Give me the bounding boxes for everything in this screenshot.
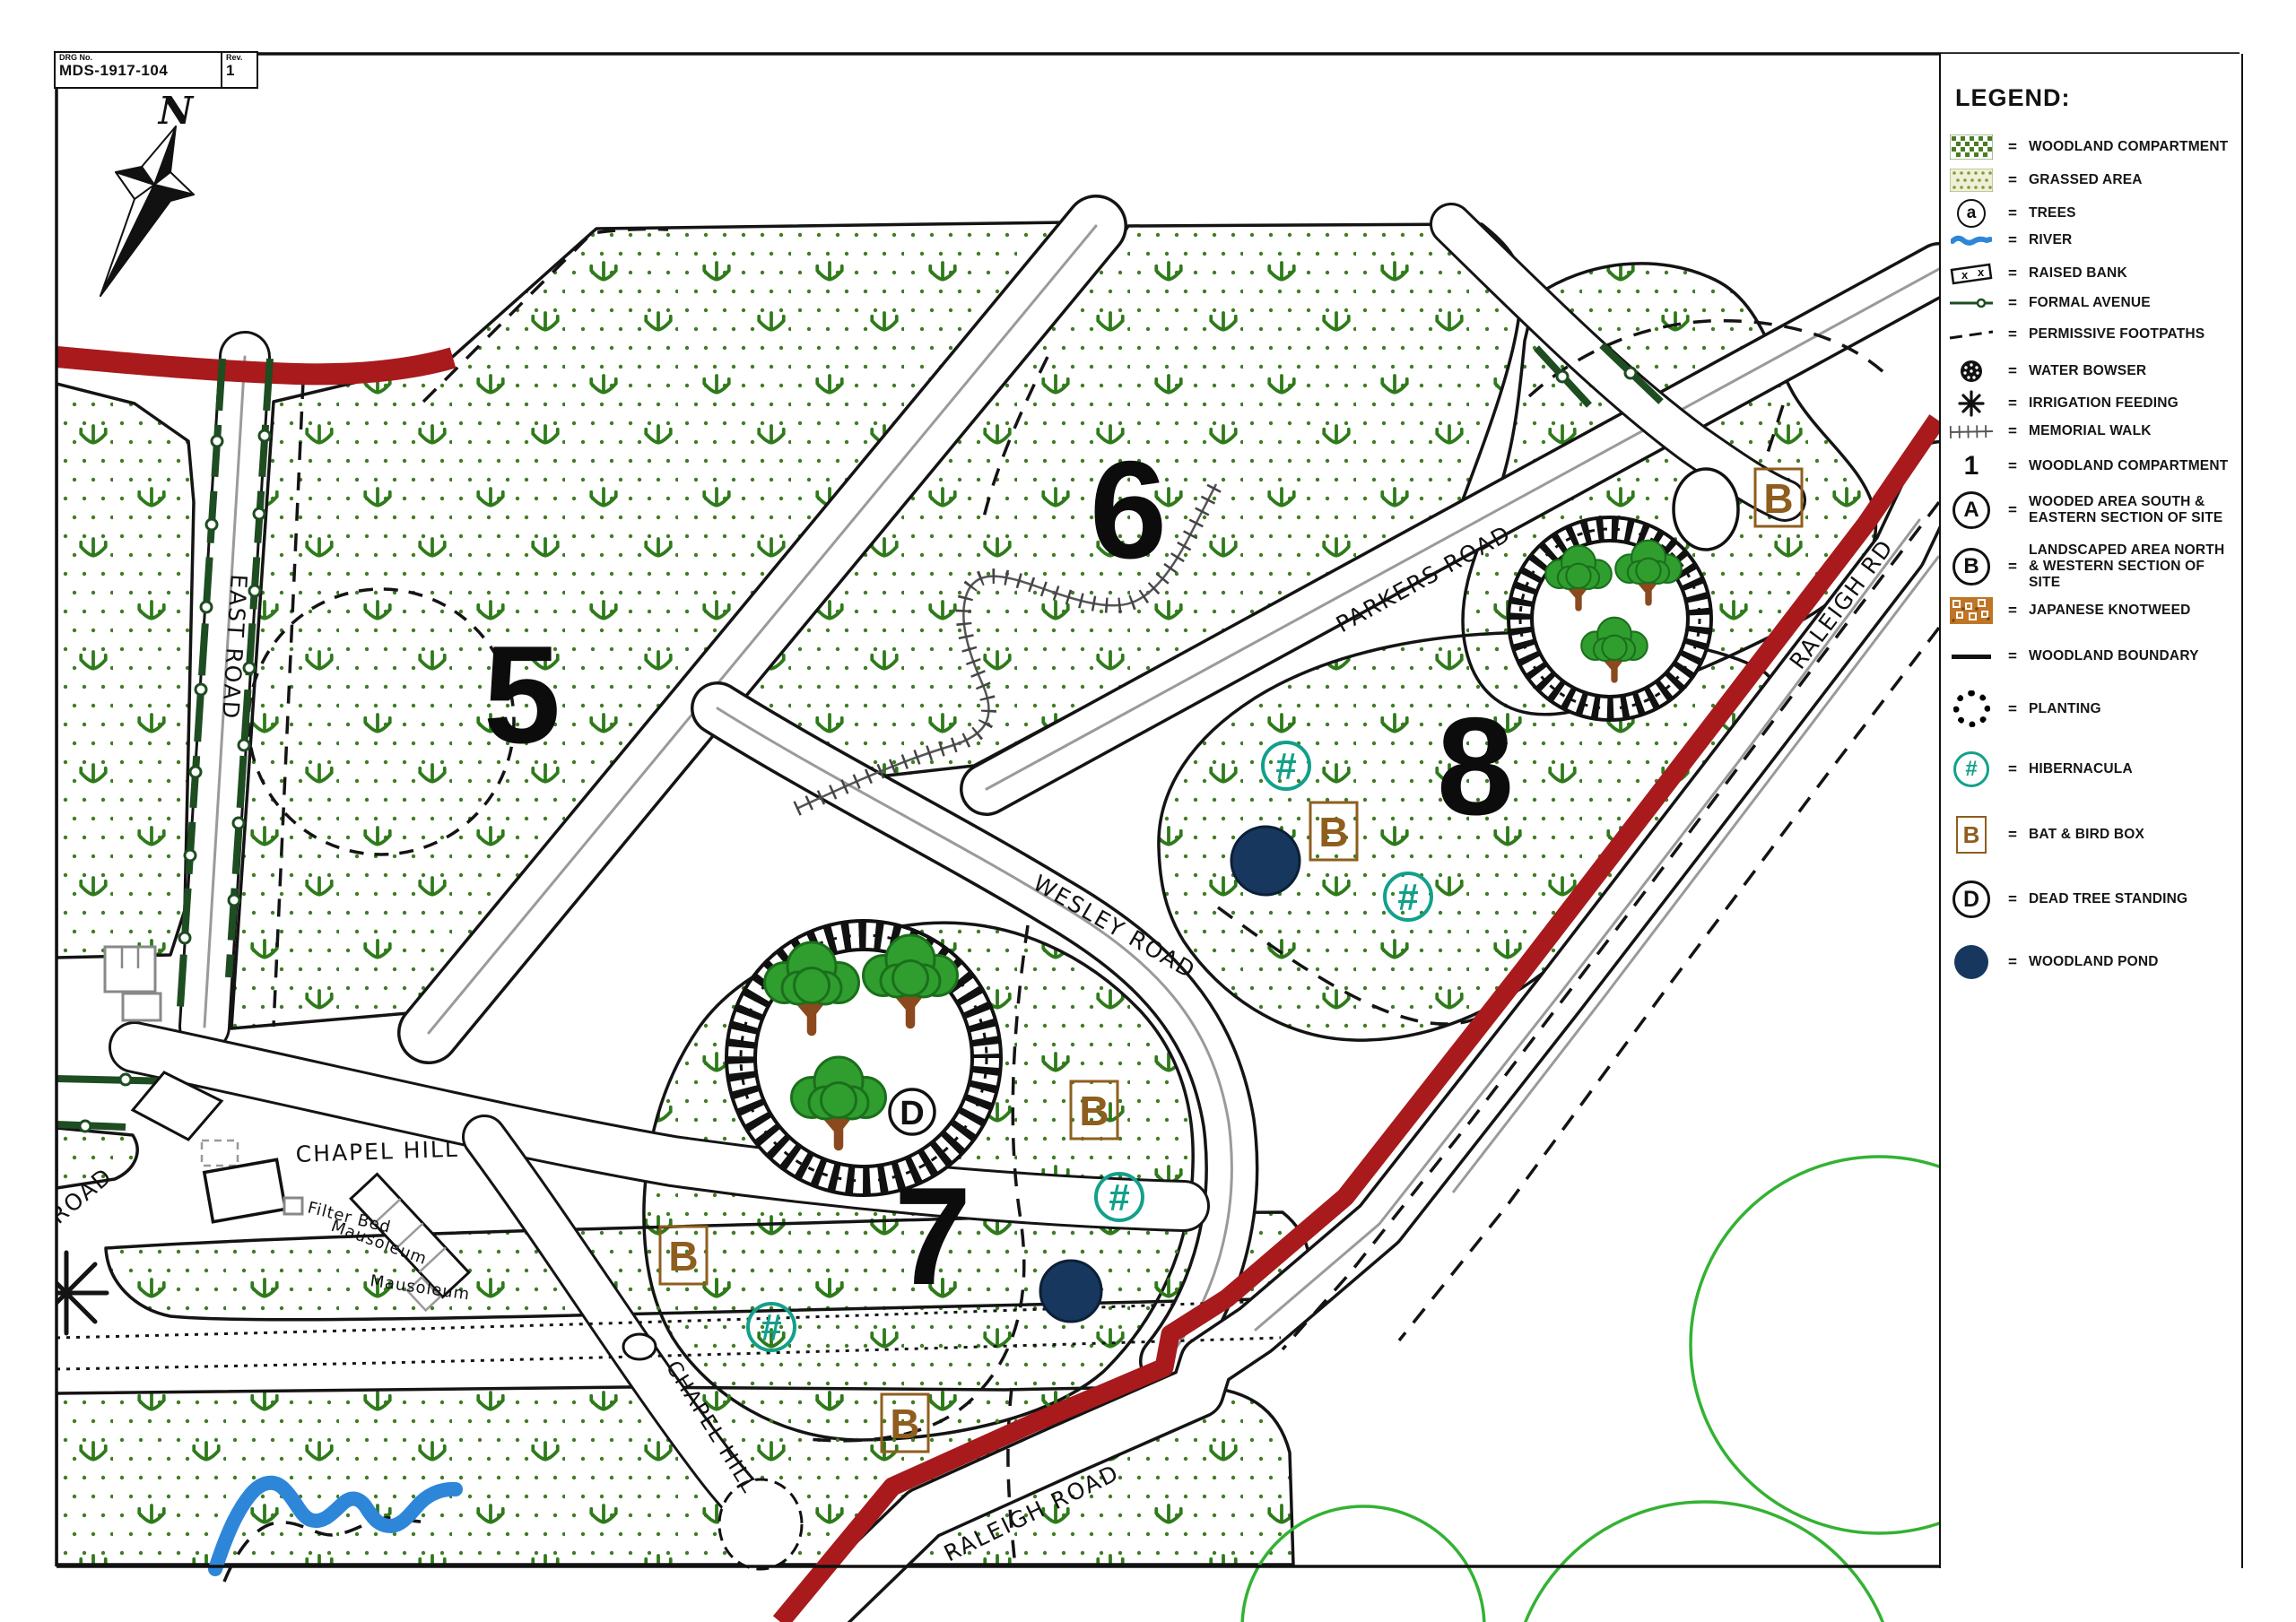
planting-icon [1953, 690, 1990, 727]
north-label: N [157, 89, 195, 133]
svg-text:#: # [1109, 1176, 1129, 1219]
hibernacula-icon: # [1953, 751, 1989, 787]
legend-item-formal-avenue: = FORMAL AVENUE [1946, 294, 2235, 312]
hibernacula-4: # [748, 1304, 795, 1350]
legend-item-woodland-boundary: = WOODLAND BOUNDARY [1946, 647, 2235, 665]
compartment-number-5: 5 [483, 617, 561, 772]
trees-icon: a [1957, 199, 1986, 228]
planting-circle-7 [741, 935, 987, 1181]
legend-item-permissive-footpaths: = PERMISSIVE FOOTPATHS [1946, 325, 2235, 343]
woodland-compartment-swatch-icon [1950, 134, 1993, 160]
legend-item-trees: a = TREES [1946, 199, 2235, 228]
small-oval [623, 1334, 656, 1359]
woodland-pond-7 [1040, 1261, 1101, 1322]
drg-no-value: MDS-1917-104 [59, 62, 217, 80]
svg-text:B: B [1079, 1088, 1109, 1134]
svg-text:#: # [1397, 876, 1418, 918]
north-arrow [100, 126, 194, 296]
woodland-pond-8 [1231, 827, 1300, 895]
compartment-number-8: 8 [1437, 689, 1514, 844]
legend-item-landscaped-area-b: B = LANDSCAPED AREA NORTH & WESTERN SECT… [1946, 542, 2235, 591]
drg-no-label: DRG No. [59, 54, 217, 62]
compartment-number-6: 6 [1090, 432, 1167, 587]
legend-item-japanese-knotweed: = JAPANESE KNOTWEED [1946, 597, 2235, 624]
site-plan-drawing: B B B B B # # # # D 5 6 7 8 EAST ROAD CH… [0, 0, 2296, 1622]
legend-item-river: = RIVER [1946, 231, 2235, 249]
svg-text:B: B [668, 1233, 698, 1279]
area-a-icon: A [1952, 491, 1990, 529]
legend-item-woodland-compartment: = WOODLAND COMPARTMENT [1946, 134, 2235, 160]
legend-panel: LEGEND: = WOODLAND COMPARTMENT = GRASSED… [1939, 54, 2243, 1568]
svg-text:D: D [900, 1095, 924, 1132]
svg-text:x: x [1978, 265, 1985, 279]
roundabout [719, 1479, 802, 1569]
woodland-pond-icon [1954, 945, 1988, 979]
irrigation-feeding-star [26, 1253, 107, 1333]
hibernacula-2: # [1385, 873, 1431, 920]
legend-item-planting: = PLANTING [1946, 690, 2235, 727]
hibernacula-3: # [1096, 1174, 1143, 1220]
legend-item-woodland-pond: = WOODLAND POND [1946, 945, 2235, 979]
compartment-number-icon: 1 [1964, 451, 1979, 481]
woodland-boundary-icon [1952, 655, 1991, 659]
planting-circle-island [1520, 529, 1700, 708]
building-1 [105, 947, 155, 992]
legend-item-hibernacula: # = HIBERNACULA [1946, 751, 2235, 787]
legend-item-compartment-number: 1 = WOODLAND COMPARTMENT [1946, 451, 2235, 481]
svg-text:x: x [1961, 268, 1969, 282]
filter-bed-building [204, 1159, 285, 1221]
rev-label: Rev. [226, 54, 253, 62]
grassed-area-swatch-icon [1950, 169, 1993, 192]
legend-item-irrigation-feeding: = IRRIGATION FEEDING [1946, 390, 2235, 417]
building-3 [202, 1141, 238, 1166]
legend-title: LEGEND: [1955, 84, 2071, 112]
compartment-west [57, 384, 194, 958]
legend-item-bat-bird-box: B = BAT & BIRD BOX [1946, 816, 2235, 854]
hibernacula-1: # [1263, 742, 1309, 789]
rev-value: 1 [226, 62, 253, 80]
legend-item-grassed-area: = GRASSED AREA [1946, 169, 2235, 192]
legend-item-wooded-area-a: A = WOODED AREA SOUTH & EASTERN SECTION … [1946, 491, 2235, 529]
compartment-number-7: 7 [894, 1158, 971, 1314]
island-clearing-oval [1674, 469, 1738, 550]
title-block: DRG No. MDS-1917-104 Rev. 1 [54, 51, 258, 89]
chapel-hill-label: CHAPEL HILL [295, 1136, 459, 1167]
legend-item-memorial-walk: = MEMORIAL WALK [1946, 422, 2235, 440]
formal-avenue-icon [1949, 298, 1994, 308]
svg-text:#: # [1275, 745, 1296, 787]
dead-tree-marker: D [890, 1089, 935, 1134]
building-2 [123, 993, 161, 1020]
irrigation-feeding-icon [1958, 390, 1985, 417]
area-b-icon: B [1952, 548, 1990, 585]
dead-tree-icon: D [1952, 880, 1990, 918]
filter-bed-square [284, 1198, 302, 1214]
permissive-footpaths-icon [1949, 328, 1994, 341]
memorial-walk-icon [1948, 423, 1995, 439]
japanese-knotweed-icon [1950, 597, 1993, 624]
svg-text:#: # [761, 1306, 781, 1349]
water-bowser-icon [1958, 358, 1985, 385]
bat-bird-box-icon: B [1956, 816, 1987, 854]
svg-text:B: B [1763, 475, 1793, 522]
svg-text:B: B [1318, 809, 1348, 855]
raised-bank-icon: x x [1949, 262, 1994, 285]
legend-item-raised-bank: x x = RAISED BANK [1946, 262, 2235, 285]
river-icon [1951, 233, 1992, 247]
legend-item-water-bowser: = WATER BOWSER [1946, 358, 2235, 385]
legend-item-dead-tree-standing: D = DEAD TREE STANDING [1946, 880, 2235, 918]
svg-text:B: B [890, 1401, 919, 1447]
